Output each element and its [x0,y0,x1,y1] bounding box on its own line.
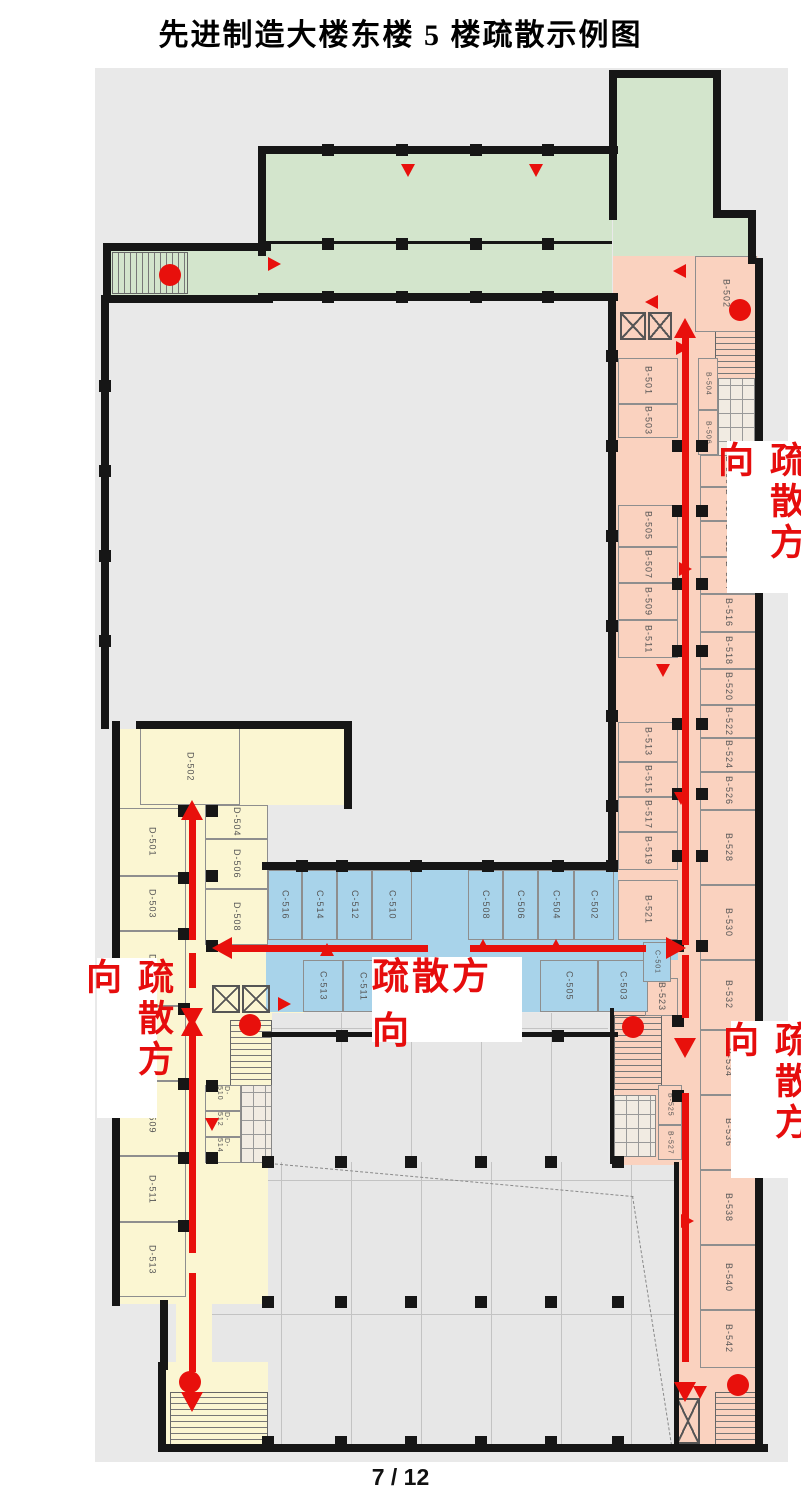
room-label: B-528 [724,833,733,862]
green-tower [617,78,713,218]
structural-column [322,291,334,303]
room-cell: B-502 [695,256,757,332]
wall-segment [262,862,618,870]
room-cell: C-516 [268,870,302,940]
room-cell: D-511 [118,1156,186,1222]
room-label: B-518 [724,636,733,665]
evacuation-direction-label-left: 疏散方向 [97,958,157,1118]
page-number: 7 / 12 [0,1464,801,1491]
room-label: B-504 [705,372,712,396]
location-dot [727,1374,749,1396]
wall-segment [755,258,763,1452]
room-cell: C-514 [302,870,337,940]
structural-column [606,350,618,362]
room-label: B-516 [724,598,733,627]
structural-column [99,550,111,562]
room-label: C-504 [552,890,561,920]
wall-segment [160,1300,168,1370]
structural-column [396,291,408,303]
room-label: B-530 [724,908,733,937]
evacuation-route-line [189,1036,196,1253]
room-label: B-515 [644,765,653,794]
exit-direction-marker [320,943,334,956]
room-label: D-501 [148,827,157,857]
structural-column [262,1156,274,1168]
wall-segment [258,293,618,301]
exit-direction-marker [679,562,692,576]
room-label: B-520 [724,672,733,701]
wall-segment [610,1008,614,1164]
room-cell: B-509 [618,583,678,620]
exit-direction-marker [549,939,563,952]
room-cell: C-513 [303,960,343,1012]
structural-column [542,291,554,303]
room-label: B-521 [644,895,653,924]
room-label: B-503 [644,406,653,435]
structural-column [545,1156,557,1168]
structural-column [696,645,708,657]
room-cell: B-538 [700,1170,757,1245]
evacuation-arrow-head-down [674,1038,696,1058]
room-label: B-538 [724,1193,733,1222]
room-label: D-510 [216,1086,230,1110]
structural-column [296,860,308,872]
room-cell: B-515 [618,762,678,797]
room-cell: D-501 [118,808,186,876]
room-cell: B-501 [618,358,678,404]
structural-column [99,465,111,477]
stairs [715,1392,758,1446]
room-label: B-501 [644,366,653,395]
structural-column [336,860,348,872]
exit-direction-marker [529,164,543,177]
room-label: B-524 [724,740,733,769]
room-cell: B-528 [700,810,757,885]
room-label: B-542 [724,1324,733,1353]
exit-direction-marker [693,1386,707,1399]
room-label: C-512 [350,890,359,920]
room-label: D-504 [232,807,241,837]
room-cell: B-516 [700,594,757,632]
exit-direction-marker [205,1118,219,1131]
evacuation-route-line [682,955,689,1018]
exit-direction-marker [401,164,415,177]
green-patch [613,212,753,258]
wall-segment [609,70,721,78]
room-cell: B-505 [618,505,678,547]
room-cell: C-508 [468,870,503,940]
room-label: C-513 [319,971,328,1001]
room-label: C-508 [481,890,490,920]
room-label: B-511 [644,625,653,653]
room-label: C-510 [388,890,397,920]
evacuation-map-page: 先进制造大楼东楼 5 楼疏散示例图 B-502B-504B-506B-508B-… [0,0,801,1502]
structural-column [696,788,708,800]
location-dot [159,264,181,286]
structural-column [612,1436,624,1448]
evacuation-direction-label-right-lower: 疏散方向 [731,1021,797,1178]
wall-segment [713,70,721,218]
evacuation-arrow-head-right [666,937,686,959]
restroom [614,1095,656,1157]
evacuation-route-line [682,338,689,945]
room-label: C-516 [281,890,290,920]
structural-column [552,860,564,872]
room-label: B-519 [644,836,653,865]
room-cell: C-506 [503,870,538,940]
room-cell: D-502 [140,728,240,805]
room-cell: B-521 [618,880,678,940]
location-dot [239,1014,261,1036]
exit-direction-marker [676,341,689,355]
structural-column [606,620,618,632]
elevator [648,312,672,340]
room-cell: B-513 [618,722,678,762]
room-cell: B-504 [698,358,718,410]
elevator [676,1398,700,1444]
room-label: B-507 [644,550,653,579]
wall-segment [266,241,612,244]
room-label: C-511 [359,972,368,1001]
structural-column [206,870,218,882]
wall-segment [103,243,111,303]
room-label: D-511 [148,1175,157,1204]
structural-column [606,440,618,452]
structural-column [206,1152,218,1164]
evacuation-arrow-head-up [674,318,696,338]
structural-column [545,1436,557,1448]
structural-column [696,850,708,862]
grid-area-bottom [212,1162,674,1448]
structural-column [552,1030,564,1042]
room-label: D-513 [148,1245,157,1275]
room-label: C-505 [565,971,574,1001]
exit-direction-marker [673,264,686,278]
structural-column [262,1296,274,1308]
structural-column [696,718,708,730]
room-cell: C-505 [540,960,598,1012]
room-cell: B-503 [618,404,678,438]
room-label: D-514 [216,1138,230,1162]
room-label: C-501 [654,950,661,974]
structural-column [470,144,482,156]
room-cell: D-513 [118,1222,186,1297]
structural-column [475,1156,487,1168]
structural-column [206,805,218,817]
structural-column [475,1296,487,1308]
room-cell: B-522 [700,705,757,738]
exit-direction-marker [681,1214,694,1228]
structural-column [262,1436,274,1448]
structural-column [322,238,334,250]
structural-column [542,238,554,250]
room-cell: B-507 [618,547,678,583]
evacuation-direction-label-center: 疏散方向 [372,957,522,1042]
room-cell: B-518 [700,632,757,669]
room-cell: B-524 [700,738,757,772]
structural-column [606,860,618,872]
wall-segment [609,70,617,220]
room-cell: B-540 [700,1245,757,1310]
structural-column [470,291,482,303]
elevator [620,312,646,340]
location-dot [622,1016,644,1038]
structural-column [612,1296,624,1308]
elevator [212,985,240,1013]
location-dot [729,299,751,321]
elevator [242,985,270,1013]
structural-column [470,238,482,250]
evacuation-route-line [189,820,196,940]
wall-segment [103,243,271,251]
structural-column [336,1030,348,1042]
structural-column [482,860,494,872]
structural-column [606,800,618,812]
room-label: D-508 [232,902,241,932]
room-cell: B-511 [618,620,678,658]
wall-segment [608,293,616,870]
structural-column [405,1296,417,1308]
exit-direction-marker [278,997,291,1011]
structural-column [606,710,618,722]
room-cell: C-510 [372,870,412,940]
page-title: 先进制造大楼东楼 5 楼疏散示例图 [0,10,801,54]
structural-column [405,1436,417,1448]
structural-column [410,860,422,872]
room-cell: B-542 [700,1310,757,1368]
room-cell: B-517 [618,797,678,832]
room-cell: C-502 [574,870,614,940]
restroom [241,1085,272,1163]
structural-column [612,1156,624,1168]
wall-segment [344,721,352,809]
structural-column [542,144,554,156]
room-cell: B-527 [658,1125,682,1160]
wall-segment [101,295,273,303]
wall-segment [674,1162,679,1447]
wall-segment [158,1362,166,1452]
wall-segment [101,295,109,729]
room-label: B-505 [644,511,653,540]
room-cell: B-526 [700,772,757,810]
room-cell: C-512 [337,870,372,940]
room-label: D-502 [186,752,195,782]
room-cell: C-504 [538,870,574,940]
structural-column [405,1156,417,1168]
room-label: B-517 [644,800,653,829]
green-hall [266,154,612,293]
wall-segment [136,721,348,729]
wall-segment [258,146,266,256]
structural-column [99,635,111,647]
evacuation-arrow-head-up [181,1016,203,1036]
evacuation-arrow-head-up [181,800,203,820]
structural-column [396,144,408,156]
structural-column [545,1296,557,1308]
room-label: C-502 [590,890,599,920]
exit-direction-marker [656,664,670,677]
structural-column [606,530,618,542]
room-label: D-506 [232,849,241,879]
exit-direction-marker [645,295,658,309]
room-cell: B-520 [700,669,757,705]
room-label: B-527 [667,1131,674,1155]
structural-column [335,1156,347,1168]
room-label: C-506 [516,890,525,920]
room-cell: D-503 [118,876,186,931]
structural-column [99,380,111,392]
wall-segment [748,210,756,264]
evacuation-route-line [189,1273,196,1372]
room-label: B-532 [724,980,733,1009]
location-dot [179,1371,201,1393]
evacuation-arrow-head-left [212,937,232,959]
structural-column [322,144,334,156]
room-label: C-503 [619,971,628,1001]
wall-segment [258,146,618,154]
structural-column [396,238,408,250]
room-label: B-509 [644,587,653,616]
room-cell: B-519 [618,832,678,870]
room-cell: B-530 [700,885,757,960]
room-label: B-540 [724,1263,733,1292]
structural-column [696,940,708,952]
room-cell: C-503 [598,960,648,1012]
structural-column [475,1436,487,1448]
evacuation-direction-label-right-upper: 疏散方向 [727,441,791,593]
room-cell: B-532 [700,960,757,1030]
room-label: B-513 [644,727,653,756]
room-label: B-522 [724,707,733,736]
structural-column [335,1436,347,1448]
exit-direction-marker [674,792,688,805]
structural-column [335,1296,347,1308]
room-label: C-514 [315,890,324,920]
room-label: B-526 [724,776,733,805]
structural-column [206,1080,218,1092]
room-label: D-503 [148,889,157,919]
exit-direction-marker [268,257,281,271]
room-label: B-523 [657,982,666,1011]
room-cell: B-523 [645,978,678,1016]
evacuation-route-line [189,953,196,988]
evacuation-arrow-head-down [181,1392,203,1412]
